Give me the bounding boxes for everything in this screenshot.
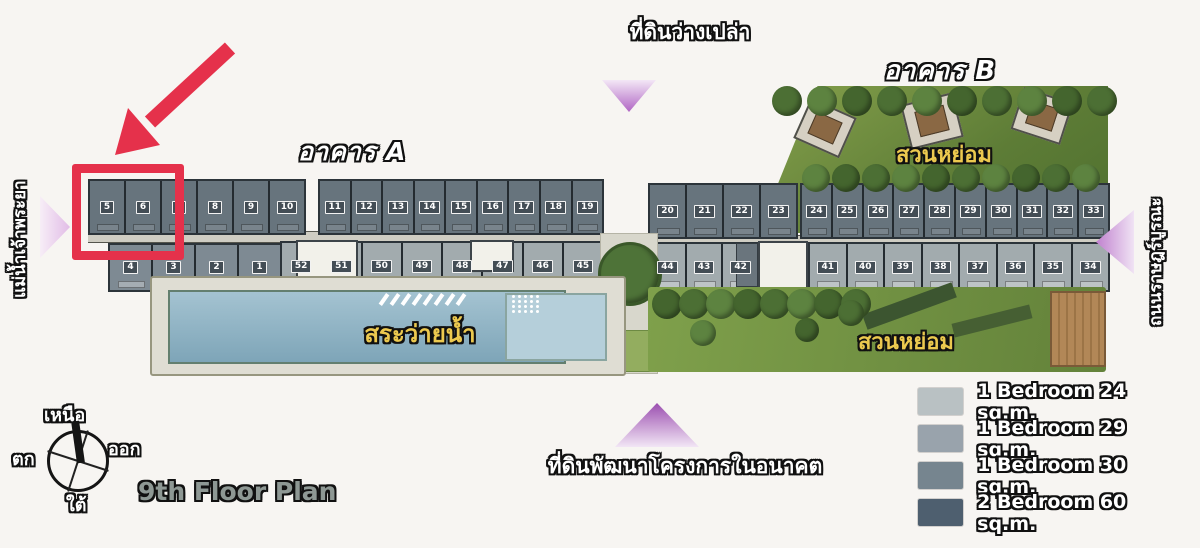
unit-number: 48 bbox=[452, 260, 473, 273]
compass-icon bbox=[47, 430, 109, 492]
unit-number: 23 bbox=[768, 205, 789, 218]
tree bbox=[982, 164, 1010, 192]
legend: 1 Bedroom 24 sq.m.1 Bedroom 29 sq.m.1 Be… bbox=[918, 388, 1188, 536]
tree bbox=[652, 289, 682, 319]
unit-cell: 31 bbox=[1016, 185, 1047, 237]
unit-cell: 27 bbox=[892, 185, 923, 237]
unit-cell: 37 bbox=[958, 244, 996, 290]
units-a-top-right: 111213141516171819 bbox=[318, 179, 604, 235]
unit-cell: 40 bbox=[846, 244, 884, 290]
garden-bottom-label: สวนหย่อม bbox=[858, 324, 954, 359]
unit-number: 1 bbox=[252, 261, 266, 274]
pool-dot bbox=[536, 300, 539, 303]
unit-number: 33 bbox=[1083, 205, 1104, 218]
tree bbox=[1017, 86, 1047, 116]
unit-number: 25 bbox=[837, 205, 858, 218]
unit-cell: 43 bbox=[685, 244, 722, 290]
tree bbox=[760, 289, 790, 319]
lane-marker bbox=[434, 293, 445, 306]
unit-number: 44 bbox=[657, 261, 678, 274]
wood-deck bbox=[1050, 291, 1106, 367]
legend-label: 2 Bedroom 60 sq.m. bbox=[977, 491, 1188, 535]
compass-west-label: ตก bbox=[12, 444, 35, 473]
unit-cell: 41 bbox=[810, 244, 846, 290]
lane-marker bbox=[412, 293, 423, 306]
tree bbox=[862, 164, 890, 192]
unit-cell: 35 bbox=[1033, 244, 1071, 290]
unit-number: 43 bbox=[694, 261, 715, 274]
unit-number: 9 bbox=[244, 201, 258, 214]
unit-number: 10 bbox=[277, 201, 298, 214]
unit-cell: 38 bbox=[921, 244, 959, 290]
lane-marker bbox=[390, 293, 401, 306]
compass-east-label: ออก bbox=[108, 434, 141, 463]
tree bbox=[1072, 164, 1100, 192]
unit-number: 51 bbox=[331, 260, 352, 273]
tree bbox=[772, 86, 802, 116]
tree bbox=[795, 318, 819, 342]
unit-number: 16 bbox=[482, 201, 503, 214]
unit-cell: 16 bbox=[476, 181, 508, 233]
unit-number: 12 bbox=[356, 201, 377, 214]
vacant-land-arrow-icon bbox=[602, 80, 656, 112]
unit-number: 17 bbox=[514, 201, 535, 214]
future-land-label: ที่ดินพัฒนาโครงการในอนาคต bbox=[525, 450, 845, 483]
tree bbox=[922, 164, 950, 192]
river-arrow-icon bbox=[40, 196, 70, 258]
unit-number: 11 bbox=[325, 201, 346, 214]
unit-number: 13 bbox=[388, 201, 409, 214]
unit-cell: 17 bbox=[507, 181, 539, 233]
tree bbox=[802, 164, 830, 192]
unit-number: 27 bbox=[899, 205, 920, 218]
highlight-box bbox=[72, 164, 184, 260]
pool-dot bbox=[524, 305, 527, 308]
unit-cell: 9 bbox=[232, 181, 268, 233]
unit-number: 21 bbox=[694, 205, 715, 218]
vacant-land-label: ที่ดินว่างเปล่า bbox=[560, 16, 820, 49]
unit-number: 45 bbox=[573, 260, 594, 273]
tree bbox=[892, 164, 920, 192]
pool-dot bbox=[512, 300, 515, 303]
tree bbox=[952, 164, 980, 192]
unit-cell: 23 bbox=[759, 185, 796, 237]
pool-dot bbox=[524, 310, 527, 313]
unit-cell: 8 bbox=[196, 181, 232, 233]
unit-cell: 24 bbox=[802, 185, 831, 237]
compass-south-label: ใต้ bbox=[66, 490, 86, 519]
units-b-bottom-right: 4140393837363534 bbox=[808, 242, 1110, 292]
unit-number: 8 bbox=[208, 201, 222, 214]
pool-dot bbox=[518, 295, 521, 298]
tree bbox=[706, 289, 736, 319]
pool-dot bbox=[512, 310, 515, 313]
unit-cell: 21 bbox=[685, 185, 722, 237]
unit-number: 37 bbox=[967, 261, 988, 274]
lane-marker bbox=[423, 293, 434, 306]
tree bbox=[842, 86, 872, 116]
building-a-label: อาคาร A bbox=[298, 132, 406, 172]
lane-marker bbox=[401, 293, 412, 306]
unit-number: 28 bbox=[929, 205, 950, 218]
pool-dot bbox=[536, 305, 539, 308]
tree bbox=[838, 300, 864, 326]
unit-number: 46 bbox=[532, 260, 553, 273]
tree bbox=[1052, 86, 1082, 116]
unit-number: 18 bbox=[545, 201, 566, 214]
pool-dot-grid bbox=[512, 295, 538, 315]
unit-cell: 12 bbox=[350, 181, 382, 233]
pool-dot bbox=[518, 305, 521, 308]
unit-cell: 11 bbox=[320, 181, 350, 233]
unit-number: 31 bbox=[1022, 205, 1043, 218]
pool-lane-markers bbox=[382, 292, 472, 308]
pool-dot bbox=[536, 295, 539, 298]
unit-cell: 32 bbox=[1046, 185, 1077, 237]
river-label: แม่น้ำเจ้าพระยา bbox=[6, 168, 33, 298]
tree bbox=[1012, 164, 1040, 192]
unit-cell: 22 bbox=[722, 185, 759, 237]
pool-dot bbox=[512, 305, 515, 308]
legend-row: 1 Bedroom 30 sq.m. bbox=[918, 462, 1188, 489]
unit-cell: 14 bbox=[413, 181, 445, 233]
pool-dot bbox=[530, 300, 533, 303]
pool-dot bbox=[518, 300, 521, 303]
lane-marker bbox=[445, 293, 456, 306]
unit-cell: 36 bbox=[996, 244, 1034, 290]
unit-number: 38 bbox=[930, 261, 951, 274]
pool-dot bbox=[530, 295, 533, 298]
road-label: ถนนราษฎร์บูรณะ bbox=[1142, 176, 1169, 326]
unit-cell: 19 bbox=[571, 181, 603, 233]
unit-number: 15 bbox=[451, 201, 472, 214]
unit-number: 42 bbox=[730, 261, 751, 274]
unit-cell: 20 bbox=[650, 185, 685, 237]
tree bbox=[807, 86, 837, 116]
tree bbox=[679, 289, 709, 319]
tree bbox=[1042, 164, 1070, 192]
unit-cell: 18 bbox=[539, 181, 571, 233]
legend-row: 1 Bedroom 29 sq.m. bbox=[918, 425, 1188, 452]
unit-number: 24 bbox=[806, 205, 827, 218]
unit-cell: 10 bbox=[268, 181, 304, 233]
pool-dot bbox=[524, 295, 527, 298]
unit-cell: 13 bbox=[381, 181, 413, 233]
tree bbox=[787, 289, 817, 319]
unit-cell: 30 bbox=[985, 185, 1016, 237]
tree bbox=[832, 164, 860, 192]
future-land-arrow-icon bbox=[615, 403, 699, 447]
unit-number: 52 bbox=[291, 260, 312, 273]
pool-label: สระว่ายน้ำ bbox=[300, 314, 540, 353]
unit-number: 49 bbox=[412, 260, 433, 273]
unit-number: 32 bbox=[1053, 205, 1074, 218]
pool-dot bbox=[512, 295, 515, 298]
unit-cell: 26 bbox=[862, 185, 893, 237]
legend-row: 1 Bedroom 24 sq.m. bbox=[918, 388, 1188, 415]
unit-number: 34 bbox=[1080, 261, 1101, 274]
unit-cell: 15 bbox=[444, 181, 476, 233]
unit-number: 20 bbox=[657, 205, 678, 218]
pool-dot bbox=[536, 310, 539, 313]
tree bbox=[690, 320, 716, 346]
unit-number: 2 bbox=[209, 261, 223, 274]
unit-cell: 39 bbox=[883, 244, 921, 290]
units-b-top-left: 20212223 bbox=[648, 183, 798, 239]
legend-row: 2 Bedroom 60 sq.m. bbox=[918, 499, 1188, 526]
pool-dot bbox=[524, 300, 527, 303]
lane-marker bbox=[456, 293, 467, 306]
unit-number: 3 bbox=[166, 261, 180, 274]
tree bbox=[1087, 86, 1117, 116]
unit-cell: 29 bbox=[954, 185, 985, 237]
unit-number: 39 bbox=[892, 261, 913, 274]
legend-swatch bbox=[918, 388, 963, 415]
unit-cell: 28 bbox=[923, 185, 954, 237]
unit-number: 22 bbox=[731, 205, 752, 218]
unit-number: 30 bbox=[991, 205, 1012, 218]
unit-number: 4 bbox=[123, 261, 137, 274]
legend-swatch bbox=[918, 499, 963, 526]
pool-dot bbox=[530, 305, 533, 308]
building-b-label: อาคาร B bbox=[884, 50, 996, 91]
unit-number: 36 bbox=[1005, 261, 1026, 274]
unit-number: 40 bbox=[855, 261, 876, 274]
unit-number: 35 bbox=[1042, 261, 1063, 274]
unit-number: 50 bbox=[371, 260, 392, 273]
unit-cell: 25 bbox=[831, 185, 862, 237]
unit-number: 19 bbox=[577, 201, 598, 214]
plan-title: 9th Floor Plan bbox=[138, 477, 336, 506]
unit-number: 14 bbox=[419, 201, 440, 214]
legend-swatch bbox=[918, 462, 963, 489]
floor-plan-canvas: สวนหย่อม 5678910 111213141516171819 2021… bbox=[0, 0, 1200, 548]
tree bbox=[733, 289, 763, 319]
legend-swatch bbox=[918, 425, 963, 452]
pool-dot bbox=[518, 310, 521, 313]
unit-number: 29 bbox=[960, 205, 981, 218]
unit-number: 26 bbox=[868, 205, 889, 218]
unit-number: 47 bbox=[492, 260, 513, 273]
unit-cell: 33 bbox=[1077, 185, 1108, 237]
unit-cell: 34 bbox=[1071, 244, 1109, 290]
unit-number: 41 bbox=[817, 261, 838, 274]
pool-dot bbox=[530, 310, 533, 313]
